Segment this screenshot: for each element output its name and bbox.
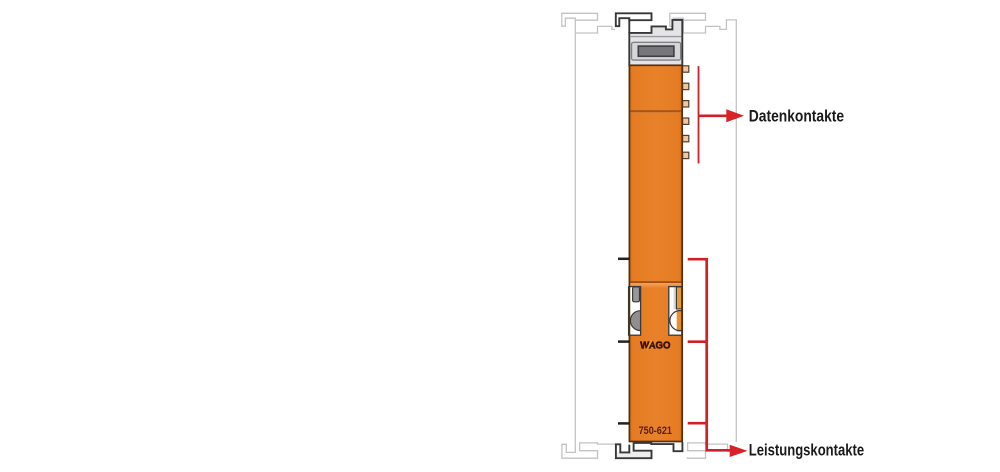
svg-text:Datenkontakte: Datenkontakte bbox=[749, 107, 844, 126]
svg-text:WAGO: WAGO bbox=[640, 340, 671, 351]
svg-text:Leistungskontakte: Leistungskontakte bbox=[749, 441, 864, 460]
svg-text:750-621: 750-621 bbox=[639, 425, 673, 437]
